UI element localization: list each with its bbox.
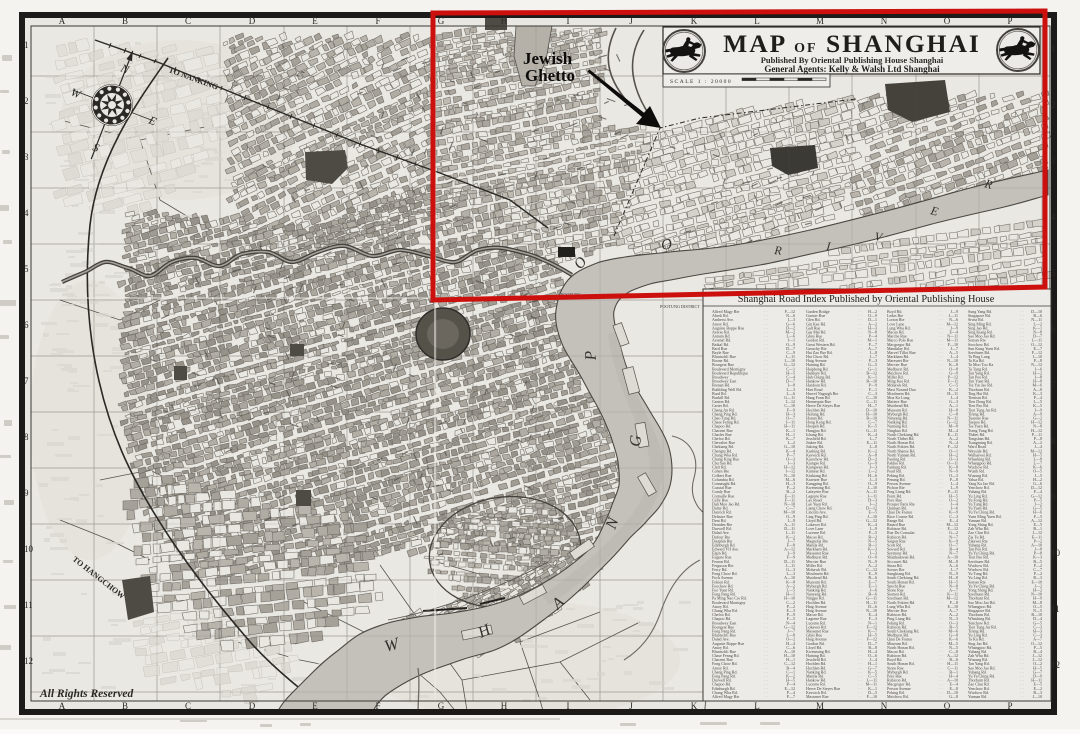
svg-text:General Agents: Kelly & Walsh: General Agents: Kelly & Walsh Ltd Shangh…	[764, 64, 940, 74]
svg-text:H: H	[501, 701, 508, 711]
svg-text:2: 2	[1051, 100, 1056, 110]
svg-text:K: K	[691, 16, 698, 26]
svg-text:C: C	[185, 16, 191, 26]
svg-text:G: G	[438, 701, 445, 711]
svg-text:H: H	[501, 16, 508, 26]
svg-text:I: I	[567, 701, 570, 711]
svg-text:N: N	[881, 16, 888, 26]
svg-text:B: B	[122, 16, 128, 26]
svg-text:POOTUNG DISTRICT: POOTUNG DISTRICT	[660, 304, 700, 309]
svg-text:· ·: · ·	[939, 694, 943, 699]
svg-text:8: 8	[1051, 436, 1056, 446]
svg-text:G—8: G—8	[949, 694, 958, 699]
svg-text:5: 5	[24, 264, 29, 274]
svg-text:Yunnan Rd.: Yunnan Rd.	[968, 694, 987, 699]
svg-text:7: 7	[1051, 380, 1056, 390]
svg-text:O: O	[944, 16, 951, 26]
svg-text:F—10: F—10	[867, 694, 877, 699]
svg-text:9: 9	[24, 488, 29, 498]
svg-text:MAP OF SHANGHAI: MAP OF SHANGHAI	[723, 29, 981, 58]
svg-text:E: E	[312, 16, 318, 26]
svg-text:4: 4	[24, 208, 29, 218]
svg-text:3: 3	[24, 152, 29, 162]
svg-text:Ghetto: Ghetto	[525, 66, 575, 85]
svg-text:11: 11	[1051, 604, 1060, 614]
svg-text:10: 10	[1051, 548, 1061, 558]
svg-text:8: 8	[24, 432, 29, 442]
svg-text:1: 1	[24, 40, 29, 50]
svg-text:7: 7	[24, 376, 29, 386]
svg-text:G: G	[438, 16, 445, 26]
svg-text:←: ←	[150, 54, 159, 64]
svg-text:9: 9	[1051, 492, 1056, 502]
svg-text:12: 12	[24, 656, 33, 666]
svg-text:Shanghai Road Index Published: Shanghai Road Index Published by Orienta…	[738, 294, 995, 305]
svg-text:Meichow Rd.: Meichow Rd.	[887, 694, 909, 699]
svg-text:E: E	[312, 701, 318, 711]
svg-text:A: A	[59, 16, 66, 26]
svg-text:O: O	[944, 701, 951, 711]
svg-text:11: 11	[24, 600, 33, 610]
svg-text:D: D	[249, 16, 256, 26]
svg-text:I: I	[567, 16, 570, 26]
svg-text:L: L	[754, 16, 760, 26]
svg-text:3: 3	[1051, 156, 1056, 166]
svg-text:F: F	[375, 16, 380, 26]
svg-text:F: F	[375, 701, 380, 711]
svg-text:12: 12	[1051, 660, 1060, 670]
svg-text:G: G	[627, 434, 645, 447]
svg-text:P: P	[1007, 16, 1012, 26]
svg-text:4: 4	[1051, 212, 1056, 222]
svg-text:K: K	[691, 701, 698, 711]
svg-text:J: J	[629, 701, 633, 711]
svg-text:N: N	[881, 701, 888, 711]
svg-text:5: 5	[1051, 268, 1056, 278]
svg-text:A: A	[59, 701, 66, 711]
svg-text:B: B	[122, 701, 128, 711]
svg-text:Alfred Magy Rte: Alfred Magy Rte	[712, 694, 740, 699]
svg-text:· ·: · ·	[764, 694, 768, 699]
svg-text:J—10: J—10	[1032, 694, 1042, 699]
svg-text:6: 6	[24, 320, 29, 330]
svg-text:1: 1	[1051, 44, 1056, 54]
svg-text:P—7: P—7	[787, 694, 795, 699]
svg-text:J: J	[629, 16, 633, 26]
svg-text:2: 2	[24, 96, 29, 106]
svg-text:· ·: · ·	[858, 694, 862, 699]
svg-text:M: M	[816, 16, 824, 26]
svg-text:6: 6	[1051, 324, 1056, 334]
svg-text:P: P	[1007, 701, 1012, 711]
svg-text:All Rights Reserved: All Rights Reserved	[39, 688, 134, 700]
svg-text:L: L	[754, 701, 760, 711]
svg-text:SCALE 1 : 20000: SCALE 1 : 20000	[670, 79, 732, 85]
svg-text:C: C	[185, 701, 191, 711]
svg-text:10: 10	[24, 544, 34, 554]
svg-text:Massenet Rue: Massenet Rue	[806, 694, 829, 699]
svg-text:M: M	[816, 701, 824, 711]
svg-text:D: D	[249, 701, 256, 711]
svg-text:· ·: · ·	[1020, 694, 1024, 699]
